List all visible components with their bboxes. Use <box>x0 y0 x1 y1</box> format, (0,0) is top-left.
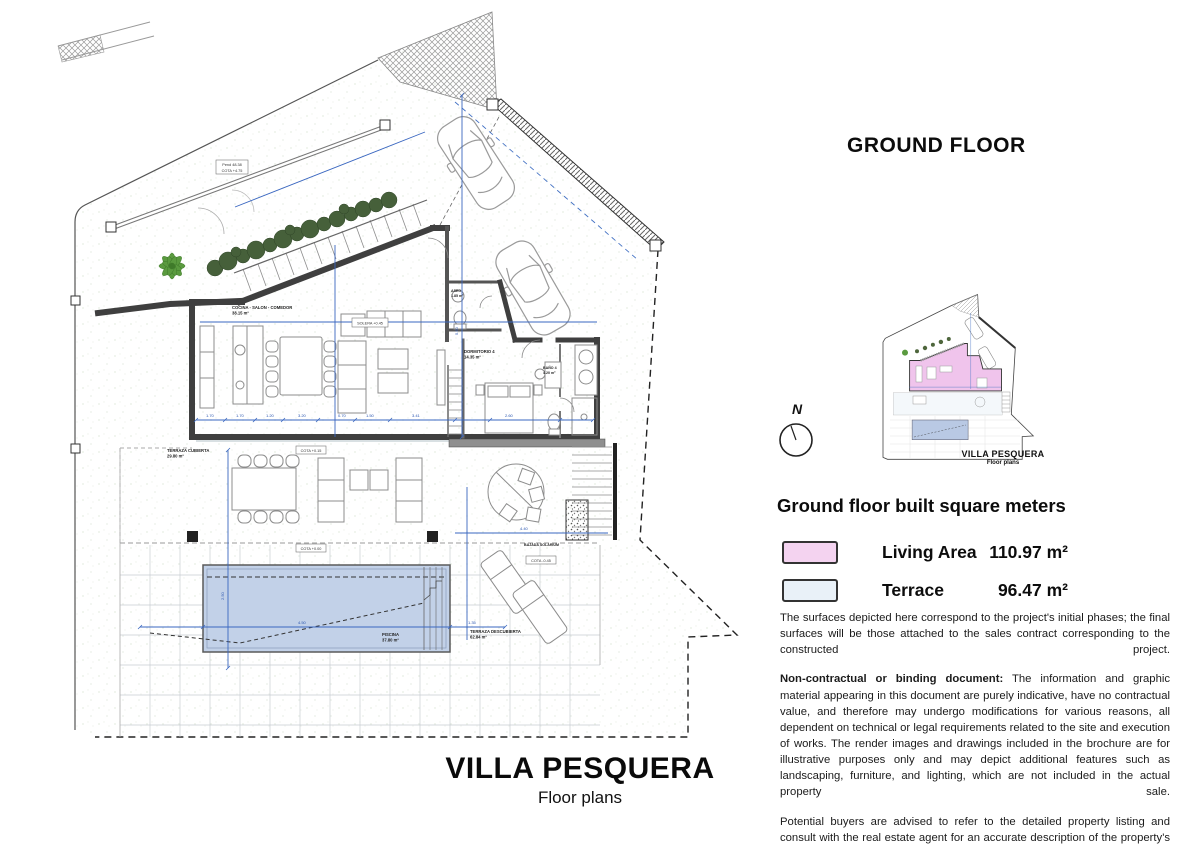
svg-text:2.60: 2.60 <box>505 413 514 418</box>
disclaimer-paragraph-2: Non-contractual or binding document: The… <box>780 671 1170 800</box>
svg-text:SOLERA +0.45: SOLERA +0.45 <box>357 322 383 326</box>
svg-text:1.20: 1.20 <box>266 413 275 418</box>
legend-label-living: Living Area <box>882 542 984 563</box>
inset-caption-title: VILLA PESQUERA <box>928 450 1078 460</box>
inset-caption: VILLA PESQUERA Floor plans <box>928 450 1078 466</box>
disclaimer-paragraph-2-text: The information and graphic material app… <box>780 673 1170 798</box>
svg-text:COCINA - SALON - COMEDOR: COCINA - SALON - COMEDOR <box>232 305 292 310</box>
svg-text:14.35 m²: 14.35 m² <box>464 355 481 360</box>
legend-value-terrace: 96.47 m² <box>984 580 1068 601</box>
svg-text:37.80 m²: 37.80 m² <box>382 638 399 643</box>
svg-text:1.70: 1.70 <box>206 413 215 418</box>
svg-text:TERRAZA CUBIERTA: TERRAZA CUBIERTA <box>167 448 209 453</box>
svg-text:2.50: 2.50 <box>220 591 225 600</box>
svg-text:COTA +0.00: COTA +0.00 <box>301 547 322 551</box>
disclaimer-bold-lead: Non-contractual or binding document: <box>780 673 1003 685</box>
plan-title-block: VILLA PESQUERA Floor plans <box>420 752 740 808</box>
disclaimer-block: The surfaces depicted here correspond to… <box>780 610 1170 849</box>
legend-row-living: Living Area 110.97 m² <box>782 541 1068 564</box>
svg-text:DORMITORIO 4: DORMITORIO 4 <box>464 349 495 354</box>
brochure-page: 1.70 1.70 1.20 3.20 0.70 1.50 3.41 2.60 … <box>0 0 1200 849</box>
svg-text:38.15 m²: 38.15 m² <box>232 311 249 316</box>
north-compass-icon: N <box>768 398 832 470</box>
svg-text:5.60: 5.60 <box>454 326 459 335</box>
svg-text:4.20 m²: 4.20 m² <box>543 371 556 375</box>
svg-text:3.41: 3.41 <box>412 413 421 418</box>
inset-key-plan <box>880 292 1045 472</box>
disclaimer-paragraph-3: Potential buyers are advised to refer to… <box>780 814 1170 849</box>
boundary-post <box>71 296 80 305</box>
legend-heading: Ground floor built square meters <box>777 495 1066 517</box>
svg-text:1.70: 1.70 <box>236 413 245 418</box>
north-label: N <box>792 401 803 417</box>
disclaimer-paragraph-1: The surfaces depicted here correspond to… <box>780 610 1170 658</box>
boundary-post <box>71 444 80 453</box>
palm-tree <box>159 253 185 279</box>
legend-value-living: 110.97 m² <box>984 542 1068 563</box>
svg-text:0.70: 0.70 <box>338 413 347 418</box>
svg-text:3.20: 3.20 <box>298 413 307 418</box>
svg-text:COTA +0.15: COTA +0.15 <box>301 449 322 453</box>
svg-text:4.50: 4.50 <box>298 620 307 625</box>
svg-text:PISCINA: PISCINA <box>382 632 399 637</box>
svg-text:COTA -0.45: COTA -0.45 <box>531 559 551 563</box>
retaining-wall <box>449 439 605 447</box>
planter <box>566 500 588 540</box>
svg-text:4.40: 4.40 <box>520 526 529 531</box>
svg-text:1.35: 1.35 <box>468 620 477 625</box>
inset-terrace <box>893 393 1002 415</box>
svg-text:COTA +4.75: COTA +4.75 <box>222 169 243 173</box>
wall-post <box>650 240 661 251</box>
svg-text:ASEO: ASEO <box>451 289 461 293</box>
living-area-swatch <box>782 541 838 564</box>
page-title: GROUND FLOOR <box>847 134 1026 158</box>
legend-label-terrace: Terrace <box>882 580 984 601</box>
floor-plan-drawing: 1.70 1.70 1.20 3.20 0.70 1.50 3.41 2.60 … <box>0 0 760 849</box>
svg-text:1.50: 1.50 <box>366 413 375 418</box>
wall-post <box>487 99 498 110</box>
inset-pool <box>912 420 968 440</box>
svg-text:62.84 m²: 62.84 m² <box>470 635 487 640</box>
svg-text:Pend 48.38: Pend 48.38 <box>222 163 241 167</box>
svg-text:TERRAZA DESCUBIERTA: TERRAZA DESCUBIERTA <box>470 629 521 634</box>
legend-row-terrace: Terrace 96.47 m² <box>782 579 1068 602</box>
svg-text:BAJADA SOLARIUM: BAJADA SOLARIUM <box>524 543 559 547</box>
neighbour-edge <box>58 22 154 62</box>
svg-text:1.85 m²: 1.85 m² <box>451 294 464 298</box>
svg-text:BAÑO 4: BAÑO 4 <box>543 365 557 370</box>
svg-text:29.80 m²: 29.80 m² <box>167 454 184 459</box>
plan-title: VILLA PESQUERA <box>420 752 740 786</box>
inset-caption-subtitle: Floor plans <box>928 460 1078 467</box>
terrace-swatch <box>782 579 838 602</box>
plan-subtitle: Floor plans <box>420 788 740 808</box>
